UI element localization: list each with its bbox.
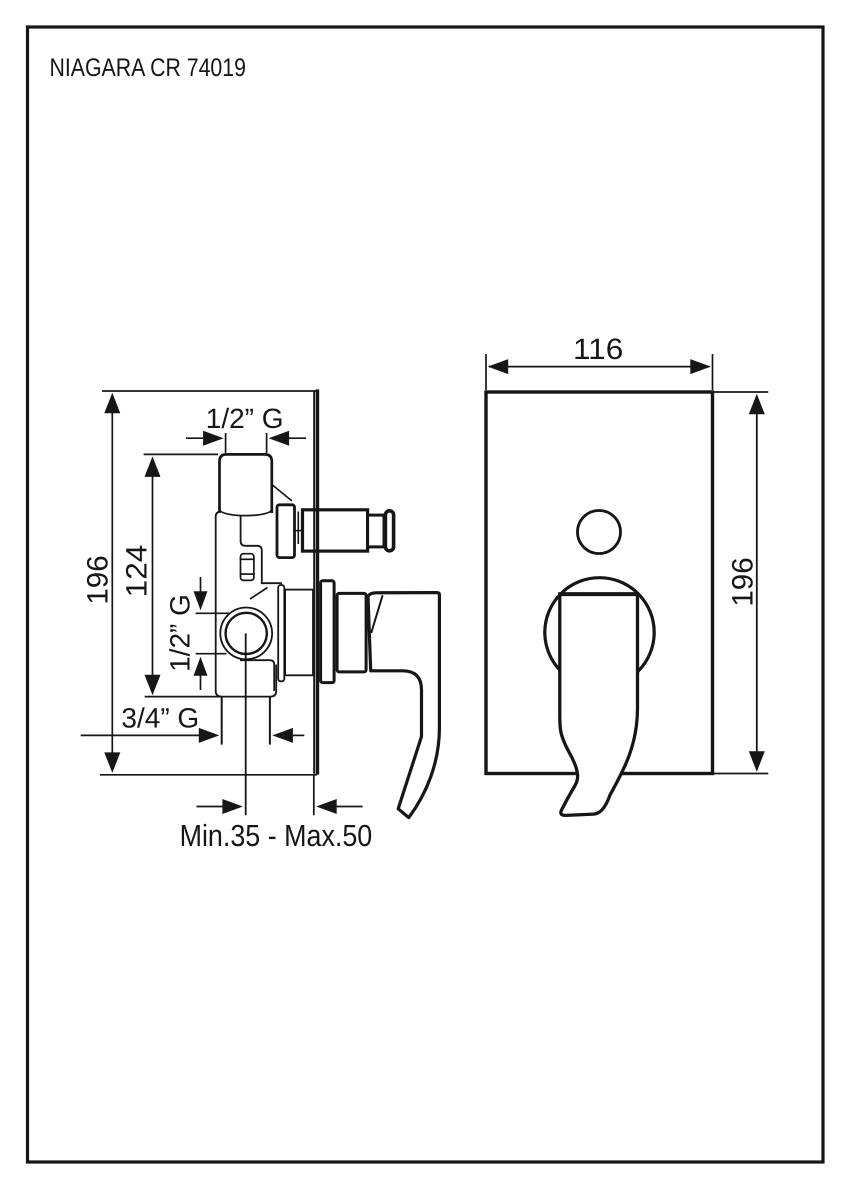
svg-text:Min.35 - Max.50: Min.35 - Max.50 bbox=[180, 819, 373, 853]
svg-text:116: 116 bbox=[573, 333, 623, 366]
svg-text:196: 196 bbox=[726, 557, 759, 606]
svg-text:3/4” G: 3/4” G bbox=[121, 703, 199, 734]
svg-text:1/2” G: 1/2” G bbox=[165, 594, 196, 672]
svg-text:1/2” G: 1/2” G bbox=[206, 403, 284, 434]
svg-text:124: 124 bbox=[121, 545, 154, 598]
svg-text:NIAGARA CR 74019: NIAGARA CR 74019 bbox=[50, 54, 246, 82]
svg-text:196: 196 bbox=[82, 555, 115, 604]
